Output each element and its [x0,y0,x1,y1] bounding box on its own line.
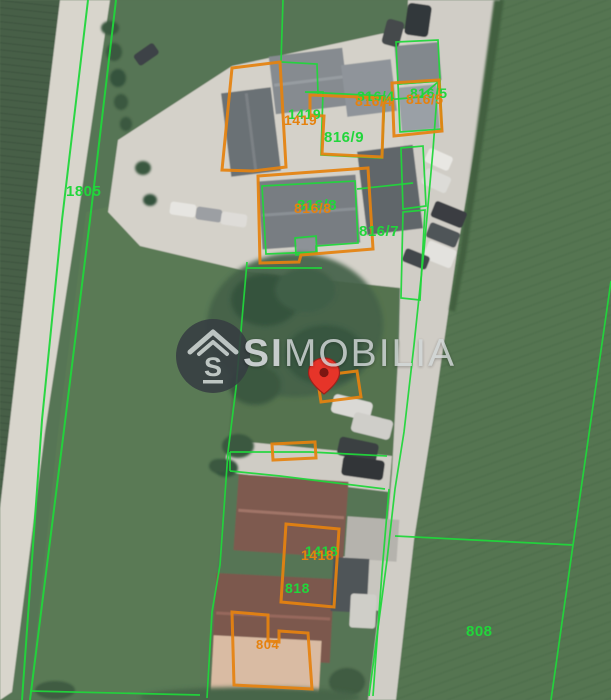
logo-letter: S [204,352,222,382]
vehicle [404,2,432,37]
building-shed [296,237,317,253]
parcel-label-1418-orange: 1418 [301,547,334,563]
building-garage-north [394,42,441,84]
parcel-label-1419-orange: 1419 [284,112,317,128]
watermark-brand-bold: SI [243,332,284,375]
map-canvas[interactable]: 1805 816/4 816/5 1419 816/9 816/8 816/7 … [0,0,611,700]
parcel-label-816-9-green: 816/9 [324,129,364,146]
watermark-brand-rest: MOBILIA [284,332,456,375]
watermark-brand: SIMOBILIA [243,332,456,376]
parcel-label-808-green: 808 [466,623,493,640]
parcel-label-816-7-green: 816/7 [359,223,399,240]
vehicle [349,593,377,628]
watermark-logo-icon: S [176,319,250,393]
parcel-label-816-4-orange: 816/4 [355,93,393,109]
building-east-barn [357,145,423,235]
parcel-label-1805-green: 1805 [66,183,101,200]
parcel-label-804-orange: 804 [256,637,279,652]
logo-underline [203,380,223,384]
parcel-label-816-5-orange: 816/5 [406,91,444,107]
watermark-logo: S [176,319,250,393]
parcel-label-818-green: 818 [285,580,310,596]
parcel-label-816-8-orange: 816/8 [294,200,332,216]
